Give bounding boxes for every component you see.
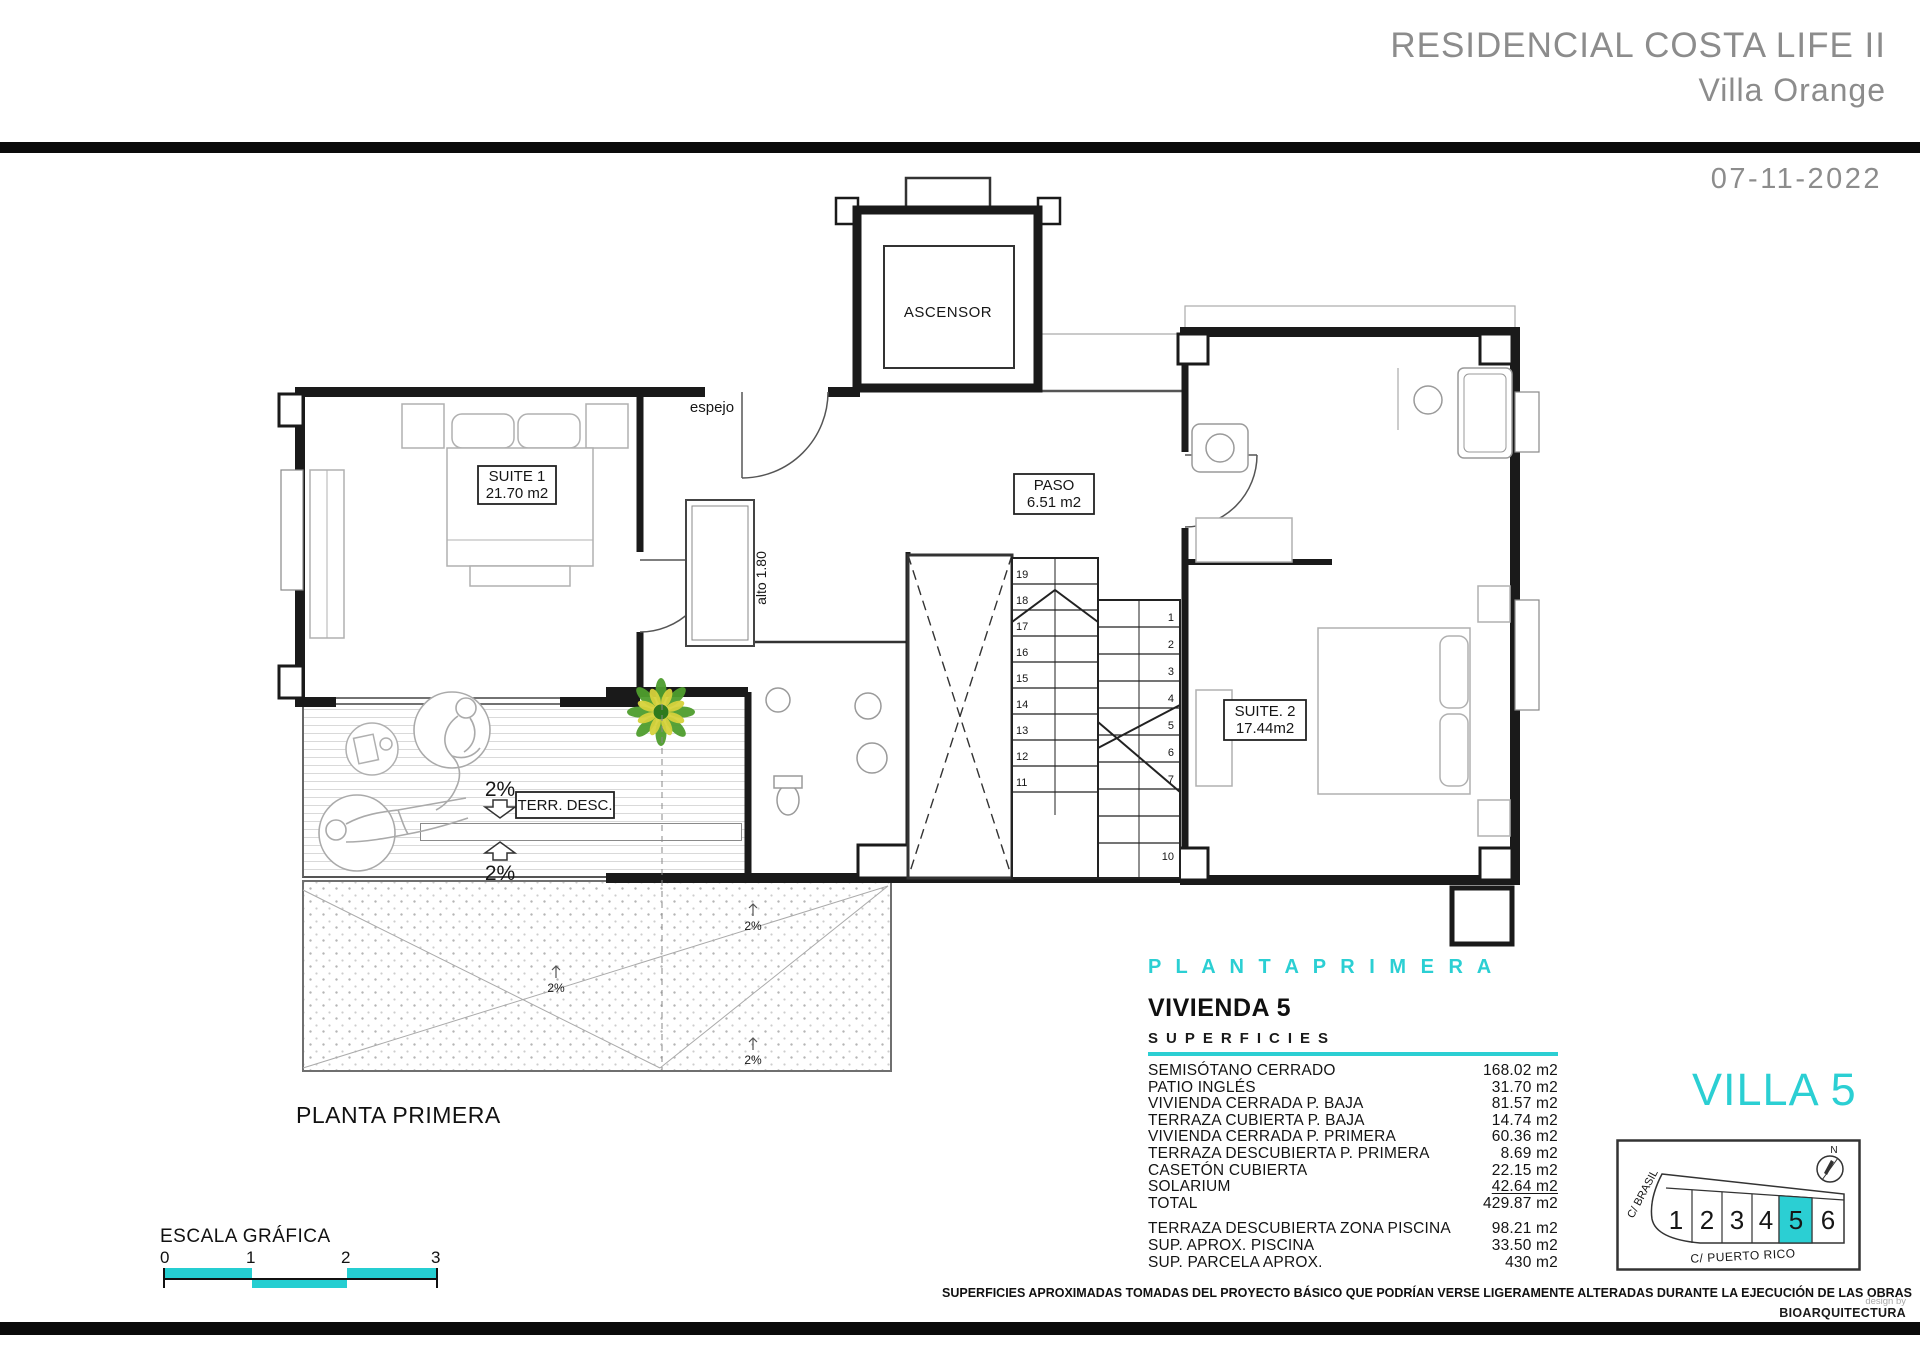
suite2-label: SUITE. 2: [1235, 703, 1296, 720]
villa-title: VILLA 5: [1692, 1064, 1857, 1116]
stair-step-number: 3: [1168, 666, 1174, 678]
table-row: SUP. APROX. PISCINA33.50 m2: [1148, 1238, 1558, 1255]
stair-step-number: 1: [1168, 612, 1174, 624]
stair-step-number: 5: [1168, 720, 1174, 732]
terrace-label: TERR. DESC.: [517, 797, 612, 814]
scale-ticks: 0 1 2 3: [160, 1248, 460, 1268]
mirror-label: espejo: [690, 399, 734, 416]
scale-end-tick: [163, 1268, 165, 1288]
stair-void: [908, 555, 1012, 878]
staircase: 19 18 17 16 15 14 13 12 11 1 2 3 4 5 6 7…: [1012, 558, 1180, 878]
suite1-furniture: [310, 404, 628, 638]
compass-icon: [1817, 1156, 1843, 1182]
suite2-furniture: [1196, 518, 1510, 836]
slope-label: 2%: [744, 919, 762, 933]
stair-step-number: 16: [1016, 647, 1028, 659]
scale-baseline: [163, 1278, 437, 1280]
stair-step-number: 7: [1168, 774, 1174, 786]
stair-step-number: 4: [1168, 693, 1174, 705]
summary-extra-rows: TERRAZA DESCUBIERTA ZONA PISCINA98.21 m2…: [1148, 1221, 1558, 1271]
scale-title: ESCALA GRÁFICA: [160, 1226, 460, 1248]
brand-name: BIOARQUITECTURA: [1779, 1307, 1906, 1320]
roof-outlines: [1038, 306, 1515, 391]
table-row: SUP. PARCELA APROX.430 m2: [1148, 1255, 1558, 1272]
stair-step-number: 2: [1168, 639, 1174, 651]
scale-tick: 3: [431, 1248, 440, 1268]
table-row: CASETÓN CUBIERTA22.15 m2: [1148, 1163, 1558, 1180]
plan-sheet: RESIDENCIAL COSTA LIFE II Villa Orange 0…: [0, 0, 1920, 1356]
stair-step-number: 15: [1016, 673, 1028, 685]
stair-step-number: 6: [1168, 747, 1174, 759]
scale-bar-segment: [347, 1268, 437, 1278]
plant-icon: [627, 678, 695, 746]
stair-step-number: 13: [1016, 725, 1028, 737]
studio-logo: design by BIOARQUITECTURA: [1779, 1297, 1906, 1320]
stair-step-number: 12: [1016, 751, 1028, 763]
parcel-number: 6: [1821, 1205, 1835, 1235]
summary-divider: [1148, 1052, 1558, 1056]
parcel-number: 4: [1759, 1205, 1773, 1235]
table-row: TERRAZA DESCUBIERTA ZONA PISCINA98.21 m2: [1148, 1221, 1558, 1238]
terrace-furniture: [319, 692, 490, 871]
suite2-area: 17.44m2: [1236, 720, 1294, 737]
scale-tick: 0: [160, 1248, 169, 1268]
parcel-number: 1: [1669, 1205, 1683, 1235]
graphic-scale: ESCALA GRÁFICA 0 1 2 3: [160, 1226, 460, 1288]
summary-rows: SEMISÓTANO CERRADO168.02 m2 PATIO INGLÉS…: [1148, 1063, 1558, 1212]
scale-bar-segment: [252, 1278, 347, 1288]
stair-step-number: 17: [1016, 621, 1028, 633]
stair-step-number: 10: [1162, 851, 1174, 863]
scale-bars: [160, 1268, 460, 1292]
surfaces-subtitle: SUPERFICIES: [1148, 1030, 1558, 1047]
table-row: TERRAZA DESCUBIERTA P. PRIMERA8.69 m2: [1148, 1146, 1558, 1163]
slope-arrows: [485, 800, 757, 1050]
scale-bar-segment: [163, 1268, 252, 1278]
table-row: PATIO INGLÉS31.70 m2: [1148, 1080, 1558, 1097]
table-row: SEMISÓTANO CERRADO168.02 m2: [1148, 1063, 1558, 1080]
table-row: VIVIENDA CERRADA P. BAJA81.57 m2: [1148, 1096, 1558, 1113]
suite1-label: SUITE 1: [489, 468, 546, 485]
suite1-area: 21.70 m2: [486, 485, 549, 502]
table-row: TERRAZA CUBIERTA P. BAJA14.74 m2: [1148, 1113, 1558, 1130]
table-row: VIVIENDA CERRADA P. PRIMERA60.36 m2: [1148, 1129, 1558, 1146]
slope-label: 2%: [547, 981, 565, 995]
stair-step-number: 14: [1016, 699, 1028, 711]
parcel-number: 2: [1700, 1205, 1714, 1235]
slope-label: 2%: [485, 862, 515, 885]
plan-caption: PLANTA PRIMERA: [296, 1102, 501, 1129]
scale-tick: 2: [341, 1248, 350, 1268]
plan-heading-cyan: P L A N T A P R I M E R A: [1148, 956, 1496, 979]
ceiling-height-label: alto 1.80: [753, 551, 769, 605]
parcel-number: 5: [1789, 1205, 1803, 1235]
slope-label: 2%: [485, 778, 515, 801]
footer-rule: [0, 1322, 1920, 1335]
surface-summary: VIVIENDA 5 SUPERFICIES SEMISÓTANO CERRAD…: [1148, 994, 1558, 1271]
table-row: SOLARIUM42.64 m2: [1148, 1179, 1558, 1196]
paso-label: PASO: [1034, 477, 1075, 494]
dwelling-title: VIVIENDA 5: [1148, 994, 1558, 1023]
scale-tick: 1: [246, 1248, 255, 1268]
site-plan: 1 2 3 4 5 6 C/ BRASIL C/ PUERTO RICO N: [1616, 1139, 1861, 1271]
parcel-number: 3: [1730, 1205, 1744, 1235]
north-label: N: [1830, 1145, 1837, 1156]
stair-step-number: 19: [1016, 569, 1028, 581]
paso-area: 6.51 m2: [1027, 494, 1081, 511]
bathroom2-fixtures: [1192, 368, 1512, 472]
table-row-total: TOTAL429.87 m2: [1148, 1196, 1558, 1213]
stair-step-number: 11: [1016, 777, 1027, 789]
stair-step-number: 18: [1016, 595, 1028, 607]
elevator-shaft: [836, 178, 1060, 388]
closet: [686, 500, 754, 646]
slope-label: 2%: [744, 1053, 762, 1067]
bathroom-fixtures: [766, 688, 887, 815]
scale-end-tick: [436, 1268, 438, 1288]
elevator-label: ASCENSOR: [904, 304, 992, 321]
disclaimer: SUPERFICIES APROXIMADAS TOMADAS DEL PROY…: [942, 1286, 1778, 1300]
